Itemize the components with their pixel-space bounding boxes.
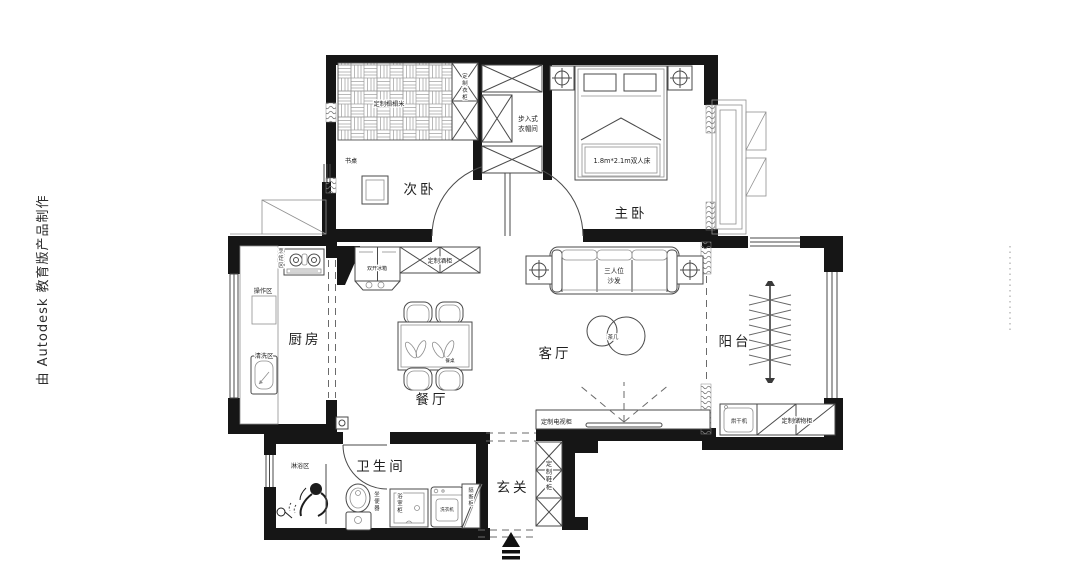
kitchen-counter bbox=[240, 246, 278, 424]
room-balcony bbox=[720, 281, 835, 435]
sink bbox=[251, 356, 277, 394]
bathroom-cabinet bbox=[390, 489, 428, 527]
label-fridge: 双开冰箱 bbox=[367, 265, 387, 272]
label-kitchen: 厨房 bbox=[289, 332, 322, 348]
label-shoe-cabinet: 定制鞋柜 bbox=[546, 460, 552, 491]
gas-meter bbox=[336, 417, 348, 429]
label-bathroom: 卫生间 bbox=[356, 459, 406, 475]
nightstand-left bbox=[550, 66, 574, 90]
label-storage-cabinet: 定制储物柜 bbox=[782, 417, 813, 425]
stove bbox=[284, 249, 324, 275]
drying-rack bbox=[749, 281, 791, 383]
dining-table-set bbox=[398, 302, 472, 390]
label-sofa-2: 沙发 bbox=[607, 276, 621, 285]
room-dining bbox=[337, 246, 480, 390]
nightstand-right bbox=[668, 66, 692, 90]
label-living-room: 客厅 bbox=[539, 345, 572, 362]
side-table-left bbox=[526, 256, 552, 284]
label-balcony: 阳台 bbox=[719, 334, 752, 350]
label-desk: 书桌 bbox=[345, 157, 357, 165]
label-walk-in-closet-2: 衣帽间 bbox=[518, 124, 538, 133]
label-tv-cabinet: 定制电视柜 bbox=[541, 418, 572, 426]
label-partition-cabinet: 隔断柜 bbox=[468, 487, 473, 507]
toilet bbox=[346, 484, 371, 530]
shower-figure bbox=[277, 484, 327, 518]
autodesk-watermark: 由 Autodesk 教育版产品制作 bbox=[35, 195, 51, 386]
label-wine-cabinet: 定制酒柜 bbox=[428, 257, 453, 265]
label-prep-zone: 操作区 bbox=[254, 287, 273, 295]
label-dining-table: 餐桌 bbox=[445, 357, 455, 364]
desk bbox=[362, 176, 388, 204]
prep-counter bbox=[252, 296, 276, 324]
washing-machine bbox=[431, 487, 463, 527]
label-dryer: 烘干机 bbox=[731, 417, 748, 425]
label-tea-table: 茶几 bbox=[608, 333, 619, 341]
label-entry: 玄关 bbox=[497, 479, 530, 496]
label-master-bedroom: 主卧 bbox=[615, 206, 648, 222]
label-washing-zone: 清洗区 bbox=[255, 352, 274, 360]
floor-plan: 次卧 主卧 厨房 餐厅 客厅 阳台 卫生间 玄关 步入式 衣帽间 定制榻榻米 定… bbox=[0, 0, 1074, 576]
label-toilet: 坐便器 bbox=[374, 490, 380, 512]
label-shower-zone: 淋浴区 bbox=[291, 462, 310, 470]
label-secondary-bedroom: 次卧 bbox=[404, 182, 437, 198]
label-double-bed: 1.8m*2.1m双人床 bbox=[594, 156, 651, 165]
room-entry bbox=[502, 442, 562, 560]
floorplan-canvas: 次卧 主卧 厨房 餐厅 客厅 阳台 卫生间 玄关 步入式 衣帽间 定制榻榻米 定… bbox=[0, 0, 1074, 576]
label-dining-room: 餐厅 bbox=[416, 392, 449, 408]
bay-window bbox=[712, 100, 766, 234]
label-cooking-zone: 烹饪区 bbox=[278, 247, 284, 269]
entrance-arrow bbox=[502, 532, 520, 560]
label-walk-in-closet-1: 步入式 bbox=[518, 114, 538, 123]
label-bathroom-cabinet: 浴室柜 bbox=[397, 492, 403, 514]
side-table-right bbox=[677, 256, 703, 284]
label-washing-machine: 洗衣机 bbox=[440, 506, 454, 513]
label-sofa-1: 三人位 bbox=[604, 266, 624, 275]
label-wardrobe: 定制衣柜 bbox=[462, 72, 468, 101]
flue-block bbox=[230, 200, 326, 234]
label-tatami: 定制榻榻米 bbox=[374, 100, 405, 108]
